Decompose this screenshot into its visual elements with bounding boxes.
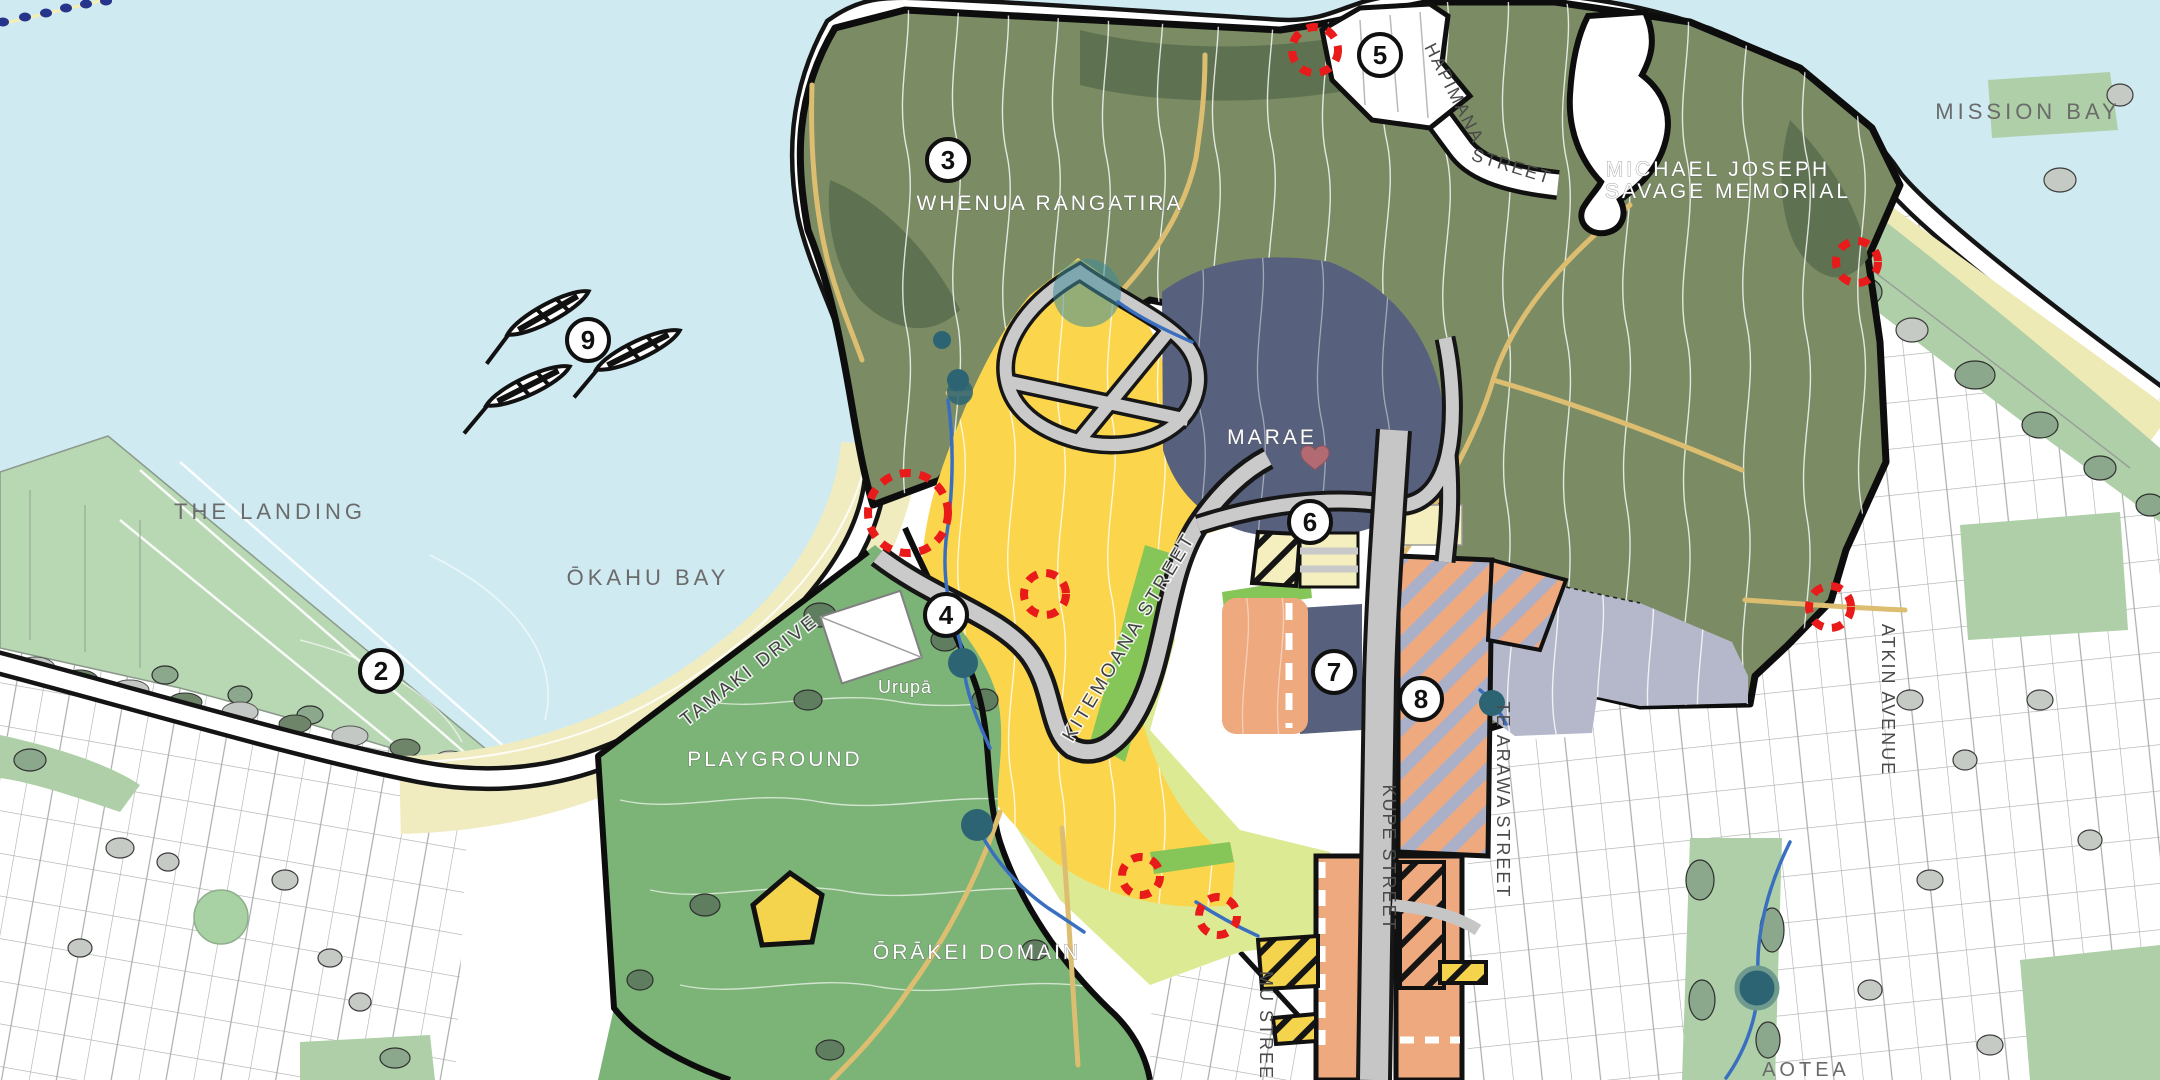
zone-hatched-yellow [1440,962,1486,983]
pond [1737,968,1777,1008]
label-atkin-avenue: ATKIN AVENUE [1878,624,1898,776]
label-savage-memorial-line1: MICHAEL JOSEPH [1606,158,1830,181]
roundabout-park-circle [194,890,248,944]
numbered-marker-7: 7 [1313,651,1355,693]
marker-number: 6 [1303,507,1317,537]
marker-number: 5 [1373,40,1387,70]
label-urupa: Urupā [878,677,932,697]
marker-number: 3 [941,145,955,175]
pond [948,648,978,678]
label-playground: PLAYGROUND [687,748,862,771]
label-okahu-bay: ŌKAHU BAY [567,565,730,590]
numbered-marker-2: 2 [360,650,402,692]
label-orakei-domain: ŌRĀKEI DOMAIN [873,941,1081,964]
numbered-marker-9: 9 [567,319,609,361]
numbered-marker-5: 5 [1359,34,1401,76]
label-marae: MARAE [1227,426,1317,449]
map-stage: 2 3 4 5 6 7 8 9 MISSION BAY MICHAEL JOSE… [0,0,2160,1080]
pond [961,809,993,841]
label-aotea: AOTEA [1762,1059,1850,1080]
label-the-landing: THE LANDING [174,499,366,524]
marker-number: 9 [581,325,595,355]
marker-number: 2 [374,656,388,686]
numbered-marker-4: 4 [925,594,967,636]
label-savage-memorial-line2: SAVAGE MEMORIAL [1605,180,1851,203]
zone-hatched-cream [1252,532,1300,586]
zone-hatched-yellow [1273,1014,1316,1044]
label-kupe-street: KUPE STREET [1379,784,1399,931]
marker-number: 8 [1414,684,1428,714]
label-te-arawa-street: TE ARAWA STREET [1493,702,1513,899]
numbered-marker-8: 8 [1400,678,1442,720]
numbered-marker-6: 6 [1289,501,1331,543]
okahu-bay-plan-map: 2 3 4 5 6 7 8 9 MISSION BAY MICHAEL JOSE… [0,0,2160,1080]
label-mu-street-fragment: MU STREET [1256,971,1276,1080]
marker-number: 7 [1327,657,1341,687]
numbered-marker-3: 3 [927,139,969,181]
label-mission-bay: MISSION BAY [1935,99,2120,124]
pond [1053,259,1121,327]
marker-number: 4 [939,600,954,630]
label-whenua-rangatira: WHENUA RANGATIRA [917,192,1184,215]
